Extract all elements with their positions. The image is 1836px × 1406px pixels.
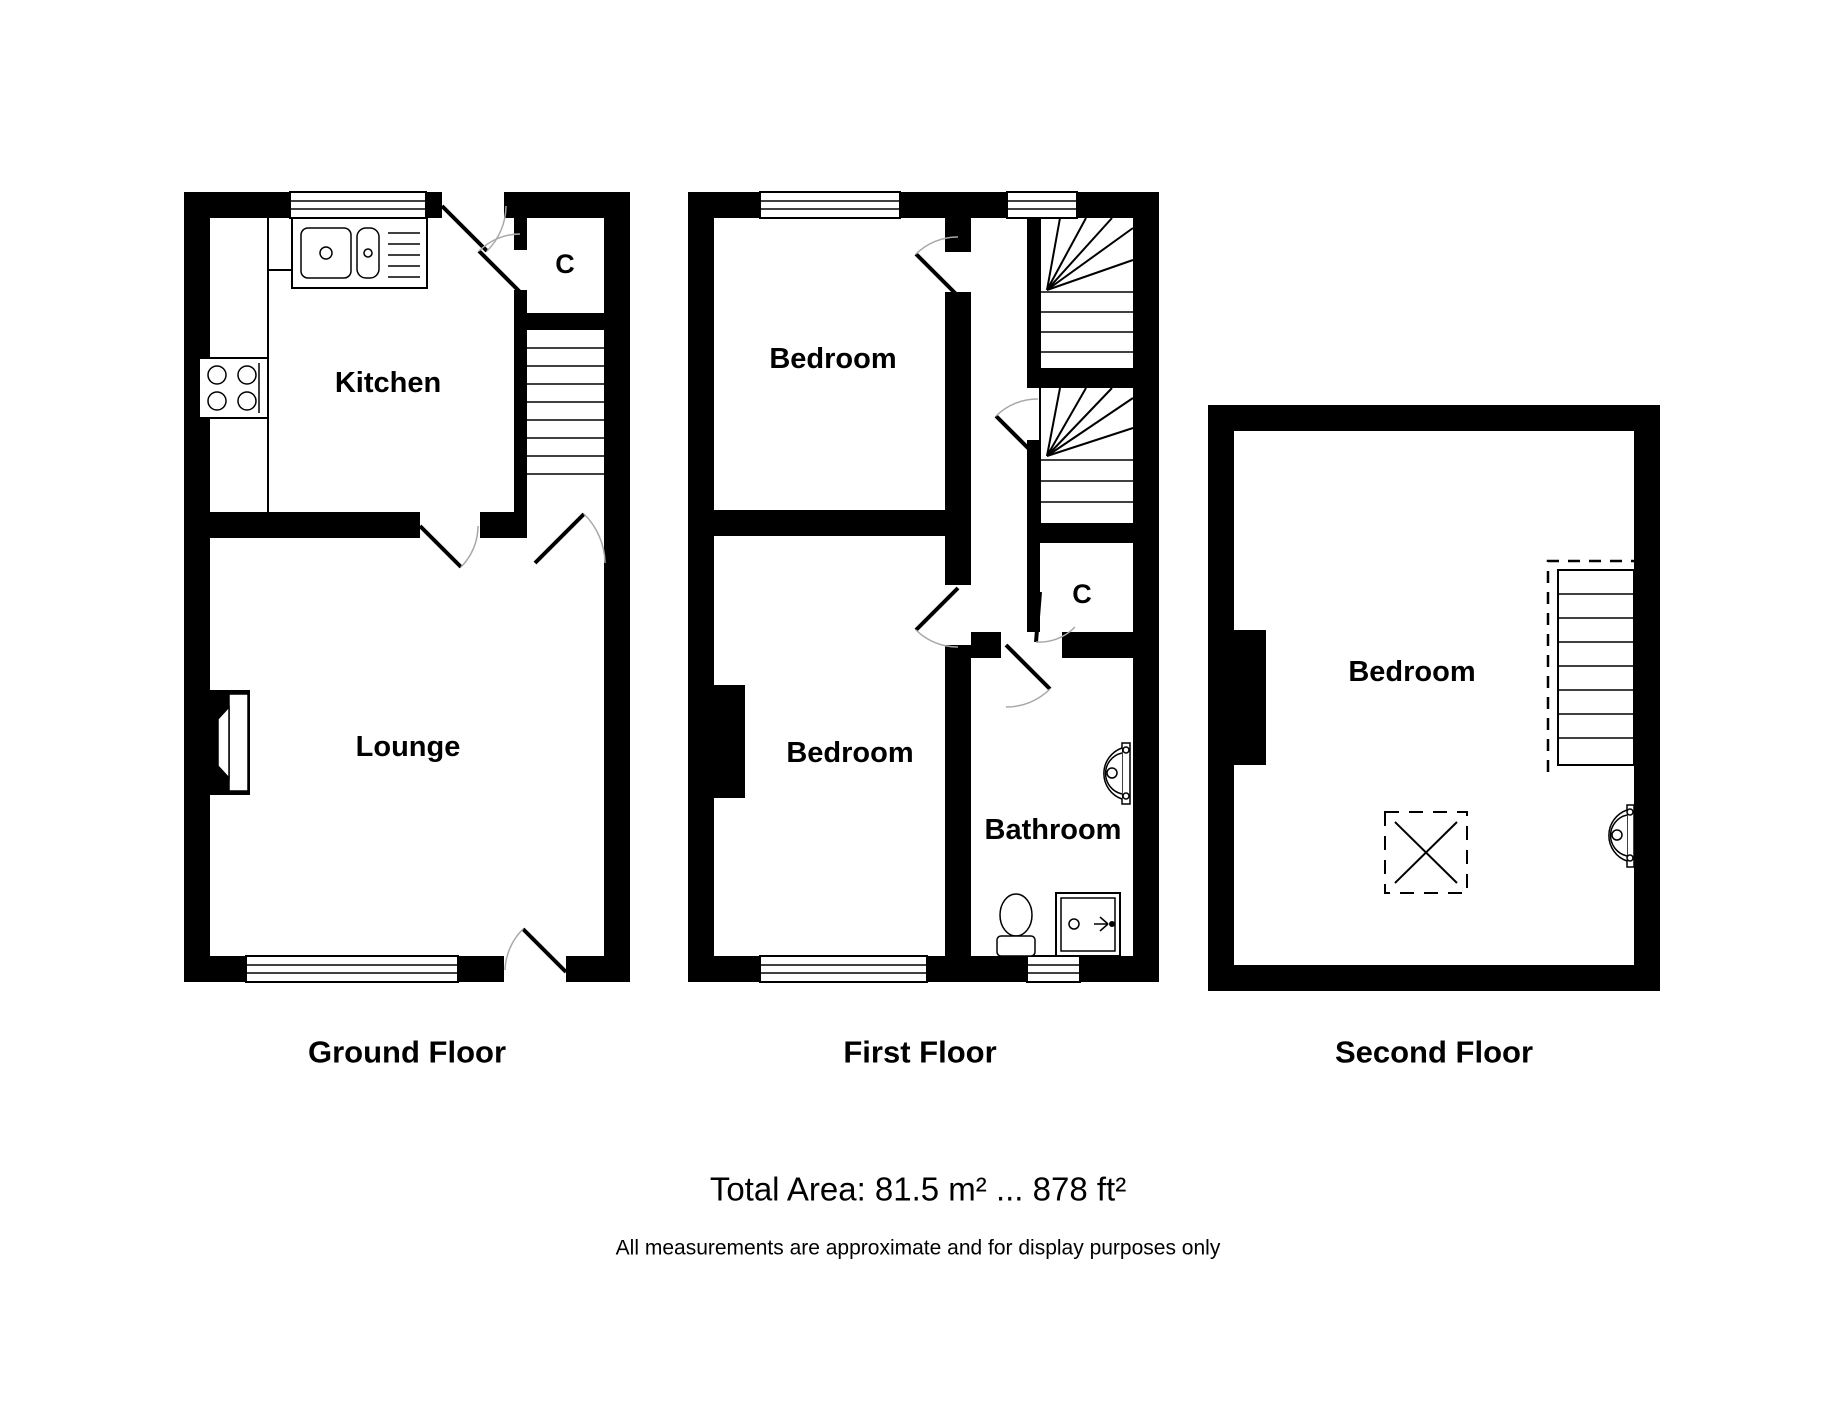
first-floor-stairs-lower bbox=[1040, 388, 1133, 523]
kitchen-label: Kitchen bbox=[335, 367, 441, 399]
bathroom-toilet bbox=[997, 894, 1035, 956]
second-floor-basin bbox=[1609, 805, 1634, 867]
total-area-text: Total Area: 81.5 m² ... 878 ft² bbox=[710, 1171, 1126, 1208]
ground-floor-window-top bbox=[290, 192, 426, 218]
bathroom-label: Bathroom bbox=[985, 814, 1122, 846]
second-floor-title: Second Floor bbox=[1335, 1035, 1533, 1070]
skylight bbox=[1385, 812, 1467, 893]
ground-floor-stairs bbox=[527, 348, 604, 474]
first-floor-stairs-upper bbox=[1034, 218, 1133, 368]
lounge-exterior-door bbox=[505, 929, 566, 972]
kitchen-door bbox=[420, 526, 478, 567]
stair-landing-door bbox=[996, 399, 1038, 458]
second-floor-plan: Bedroom bbox=[1208, 405, 1660, 991]
bathroom-shower bbox=[1056, 893, 1120, 956]
stairs-door bbox=[535, 514, 605, 563]
kitchen-hob bbox=[199, 358, 268, 418]
ground-floor-title: Ground Floor bbox=[308, 1035, 506, 1070]
first-floor-window-back bbox=[760, 956, 927, 982]
kitchen-sink bbox=[292, 218, 427, 288]
first-floor-plan: Bedroom Bedroom Bathroom C bbox=[688, 192, 1159, 982]
bathroom-basin bbox=[1104, 743, 1130, 804]
second-bedroom-label: Bedroom bbox=[1348, 656, 1475, 688]
first-floor-window-landing bbox=[1007, 192, 1077, 218]
first-closet-label: C bbox=[1072, 579, 1092, 609]
lounge-label: Lounge bbox=[356, 731, 461, 763]
bedroom-front-label: Bedroom bbox=[769, 343, 896, 375]
bathroom-window bbox=[1027, 956, 1080, 982]
front-door bbox=[442, 206, 506, 251]
disclaimer-text: All measurements are approximate and for… bbox=[616, 1237, 1221, 1260]
ground-floor-window-bottom bbox=[246, 956, 458, 982]
first-floor-title: First Floor bbox=[843, 1035, 996, 1070]
ground-closet-door bbox=[479, 234, 520, 292]
bathroom-door bbox=[1006, 645, 1050, 707]
first-floor-window-front bbox=[760, 192, 900, 218]
floorplan-drawing: Kitchen Lounge C bbox=[0, 0, 1836, 1406]
ground-floor-plan: Kitchen Lounge C bbox=[184, 192, 630, 982]
ground-floor-walls bbox=[184, 192, 630, 982]
bedroom-back-label: Bedroom bbox=[786, 737, 913, 769]
bedroom-back-door bbox=[916, 588, 958, 647]
ground-closet-label: C bbox=[555, 249, 575, 279]
kitchen-counter bbox=[268, 218, 294, 512]
floorplan-page: Kitchen Lounge C bbox=[0, 0, 1836, 1406]
second-floor-stairs bbox=[1548, 561, 1634, 772]
lounge-fireplace bbox=[210, 690, 250, 795]
